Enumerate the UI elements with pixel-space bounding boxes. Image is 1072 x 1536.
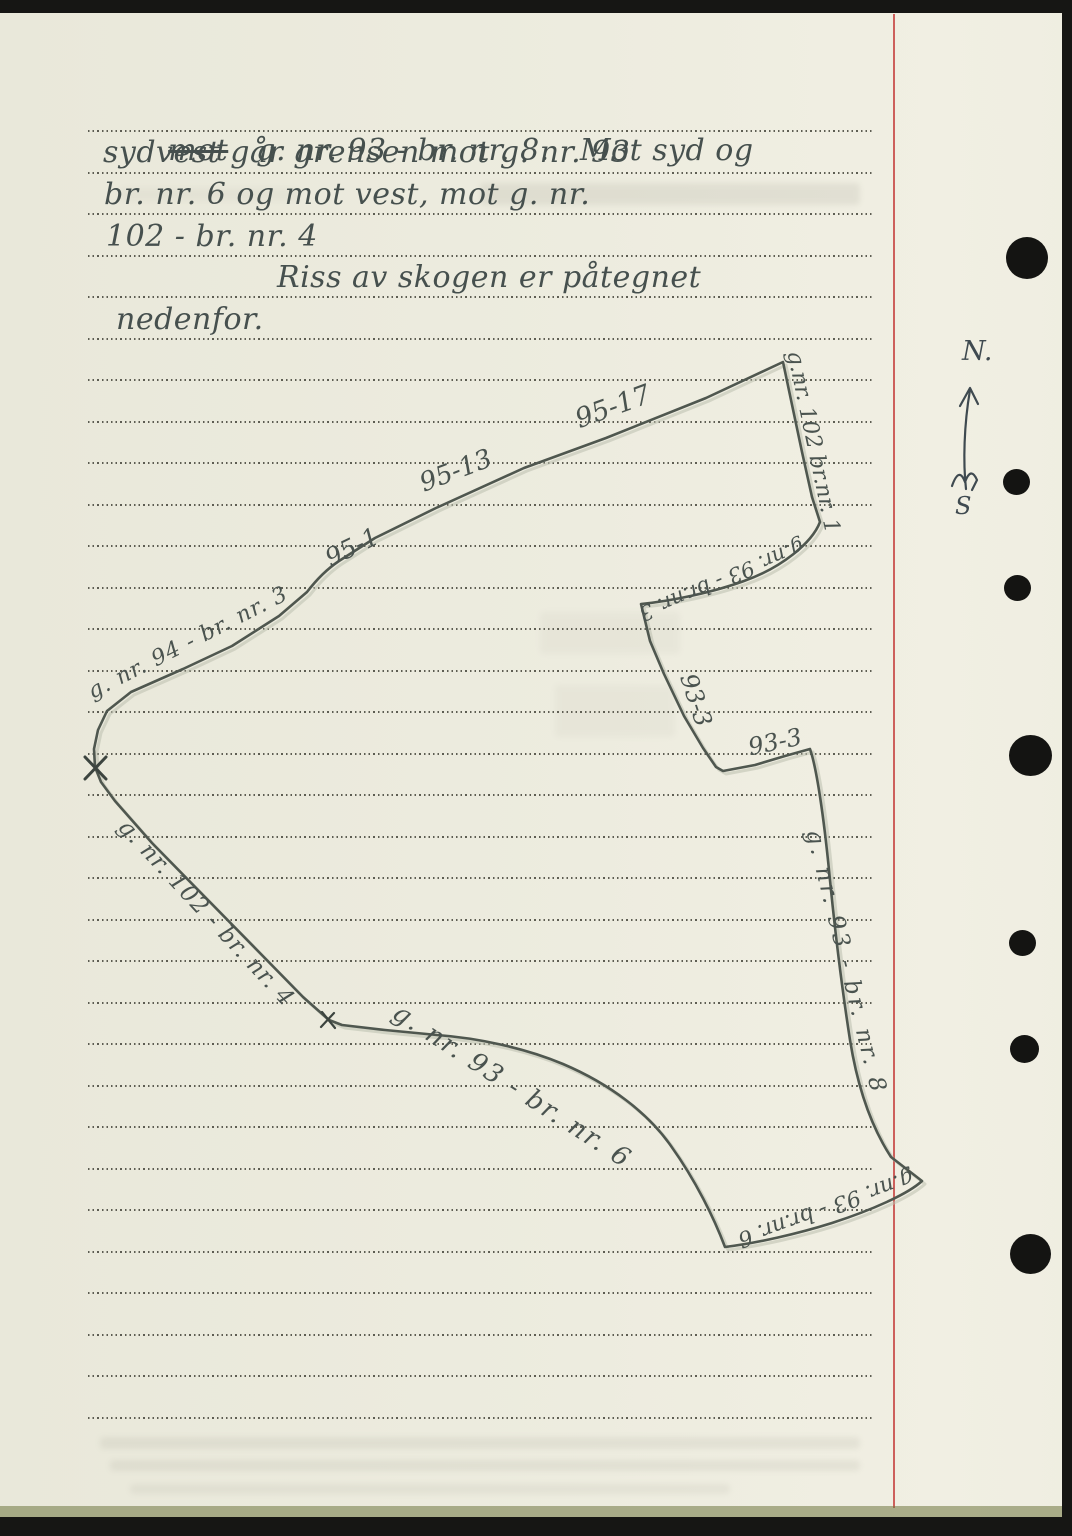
- property-sketch: [0, 0, 1072, 1536]
- boundary-path-shadow: [97, 365, 925, 1250]
- punch-hole: [1010, 1234, 1051, 1274]
- punch-hole: [1004, 575, 1031, 601]
- scan-edge-top: [0, 0, 1072, 13]
- scan-edge-right: [1062, 0, 1072, 1536]
- punch-hole: [1010, 1035, 1039, 1063]
- punch-hole: [1003, 469, 1030, 495]
- scanned-notebook-page: motg. nr. 93 - br. nr. 8. Mot syd og syd…: [0, 0, 1072, 1536]
- compass-north-label: N.: [962, 336, 992, 367]
- compass-south-label: S: [955, 492, 971, 520]
- punch-hole: [1009, 735, 1052, 776]
- compass-north-arrow-icon: [952, 388, 978, 490]
- boundary-path: [94, 362, 922, 1247]
- punch-hole: [1009, 930, 1036, 956]
- scan-edge-bottom: [0, 1517, 1072, 1536]
- boundary-tick-mark: [321, 1012, 335, 1028]
- punch-hole: [1006, 237, 1048, 279]
